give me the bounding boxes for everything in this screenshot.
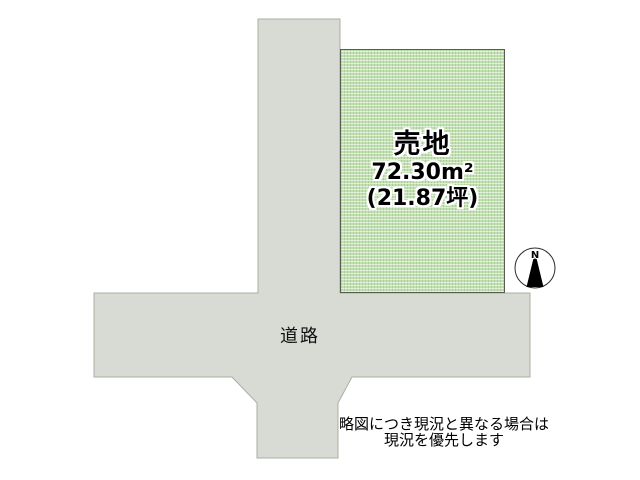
disclaimer-line2: 現況を優先します — [339, 432, 549, 448]
site-plan-diagram: 売地 72.30m² (21.87坪) 道路 N 略図につき現況と異なる場合は … — [0, 0, 640, 480]
compass-icon: N — [513, 246, 557, 290]
land-plot: 売地 72.30m² (21.87坪) — [340, 49, 505, 293]
compass-north-label: N — [531, 250, 539, 261]
road-shape — [0, 0, 640, 480]
disclaimer-line1: 略図につき現況と異なる場合は — [339, 416, 549, 432]
plot-area-tsubo: (21.87坪) — [367, 186, 479, 212]
disclaimer-note: 略図につき現況と異なる場合は 現況を優先します — [339, 416, 549, 448]
plot-title: 売地 — [367, 130, 479, 160]
land-plot-text: 売地 72.30m² (21.87坪) — [367, 130, 479, 212]
plot-area-m2: 72.30m² — [367, 160, 479, 186]
road-label: 道路 — [280, 322, 320, 348]
